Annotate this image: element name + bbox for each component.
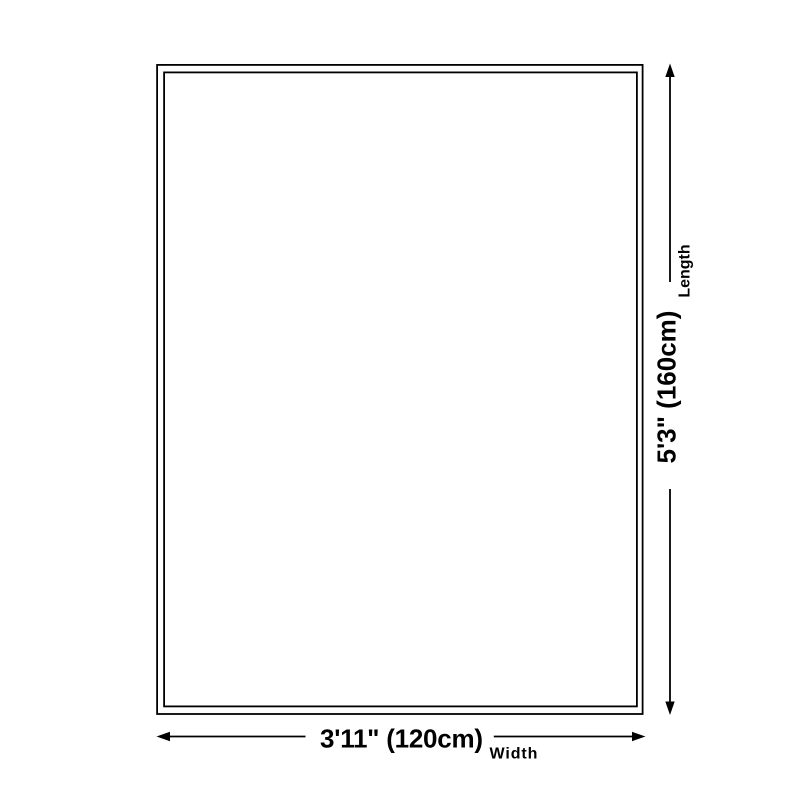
svg-text:Length: Length (677, 244, 694, 297)
svg-text:5'3" (160cm): 5'3" (160cm) (652, 311, 682, 464)
svg-text:3'11" (120cm): 3'11" (120cm) (320, 724, 483, 754)
svg-text:Width: Width (490, 746, 539, 763)
